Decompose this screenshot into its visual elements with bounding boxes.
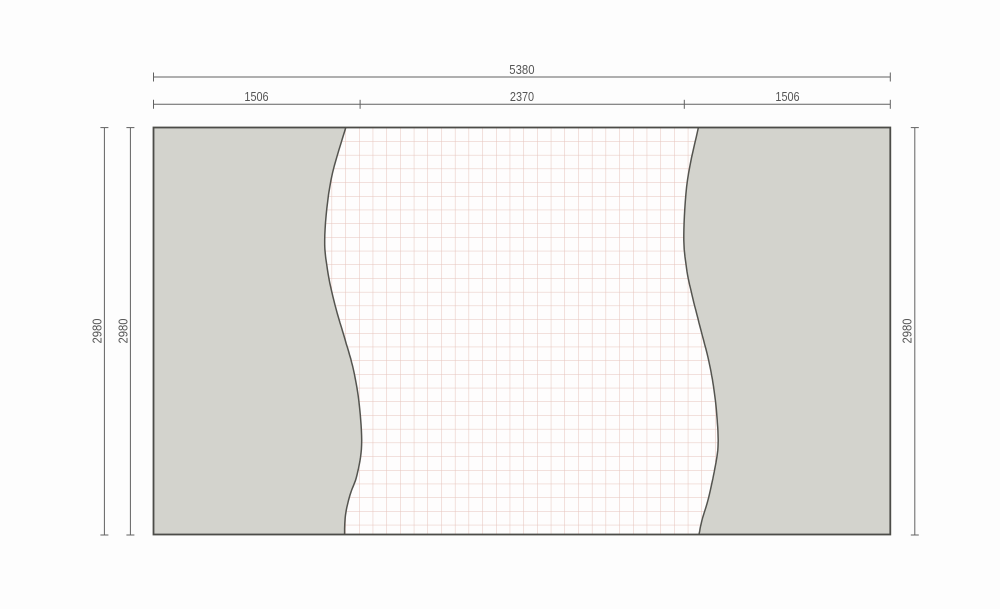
- svg-text:2370: 2370: [510, 89, 534, 104]
- svg-text:1506: 1506: [244, 89, 268, 104]
- svg-text:2980: 2980: [89, 319, 104, 344]
- svg-text:2980: 2980: [115, 319, 130, 344]
- svg-text:5380: 5380: [509, 62, 534, 77]
- svg-text:1506: 1506: [775, 89, 799, 104]
- svg-text:2980: 2980: [900, 319, 915, 344]
